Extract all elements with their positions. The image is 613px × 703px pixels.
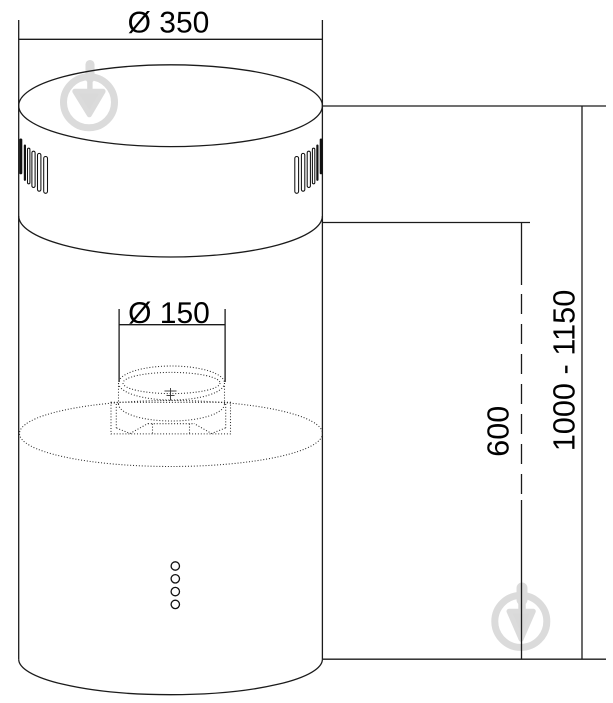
- svg-text:Ø 150: Ø 150: [128, 297, 210, 330]
- svg-text:600: 600: [482, 406, 516, 457]
- svg-text:Ø 350: Ø 350: [128, 7, 210, 40]
- svg-text:1000 - 1150: 1000 - 1150: [547, 290, 582, 452]
